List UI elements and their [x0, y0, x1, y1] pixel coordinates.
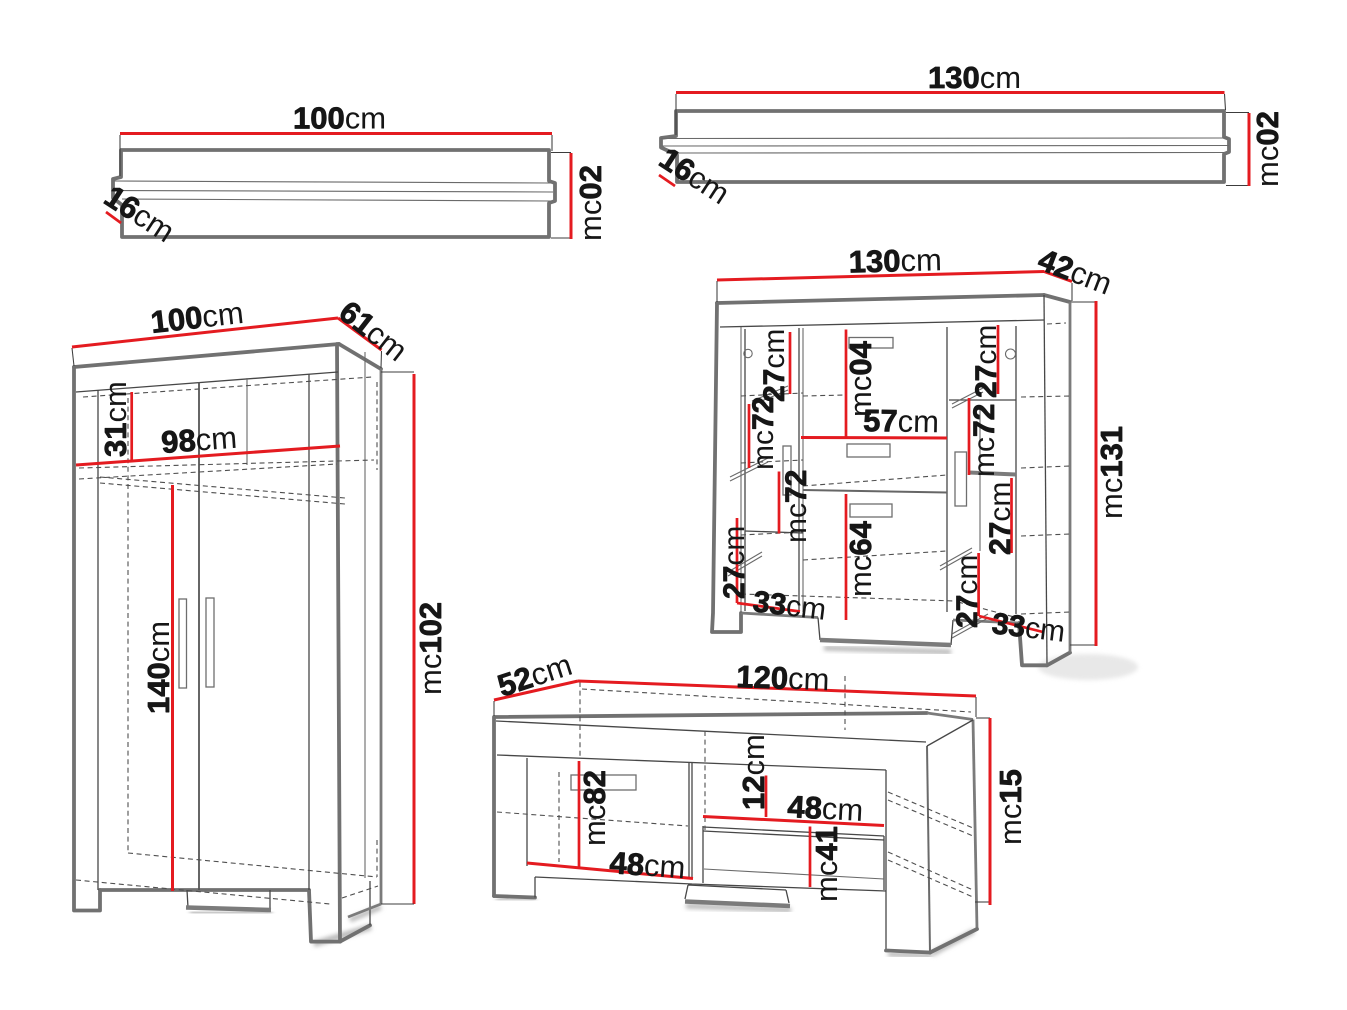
svg-text:mc02: mc02	[573, 165, 608, 241]
svg-text:130cm: 130cm	[928, 60, 1021, 95]
svg-text:mc72: mc72	[968, 404, 1001, 477]
svg-text:mc131: mc131	[1094, 426, 1129, 519]
svg-text:12cm: 12cm	[736, 734, 771, 810]
svg-text:140cm: 140cm	[141, 621, 176, 714]
svg-text:57cm: 57cm	[863, 403, 939, 439]
svg-text:27cm: 27cm	[718, 526, 751, 599]
svg-text:130cm: 130cm	[848, 242, 942, 279]
svg-text:98cm: 98cm	[160, 420, 238, 460]
svg-text:31cm: 31cm	[98, 381, 133, 457]
svg-text:mc82: mc82	[577, 770, 612, 846]
svg-text:mc64: mc64	[843, 520, 878, 597]
svg-text:48cm: 48cm	[787, 789, 865, 828]
svg-text:27cm: 27cm	[984, 482, 1017, 555]
svg-text:mc72: mc72	[747, 397, 780, 470]
svg-text:120cm: 120cm	[736, 659, 830, 697]
svg-text:27cm: 27cm	[758, 329, 791, 402]
svg-text:27cm: 27cm	[970, 325, 1003, 398]
svg-text:mc02: mc02	[1250, 111, 1285, 187]
svg-text:mc72: mc72	[780, 470, 813, 543]
svg-text:mc15: mc15	[993, 769, 1028, 845]
svg-text:mc102: mc102	[413, 602, 448, 695]
svg-text:mc41: mc41	[809, 826, 844, 902]
svg-text:100cm: 100cm	[293, 101, 386, 136]
svg-text:48cm: 48cm	[609, 845, 687, 885]
